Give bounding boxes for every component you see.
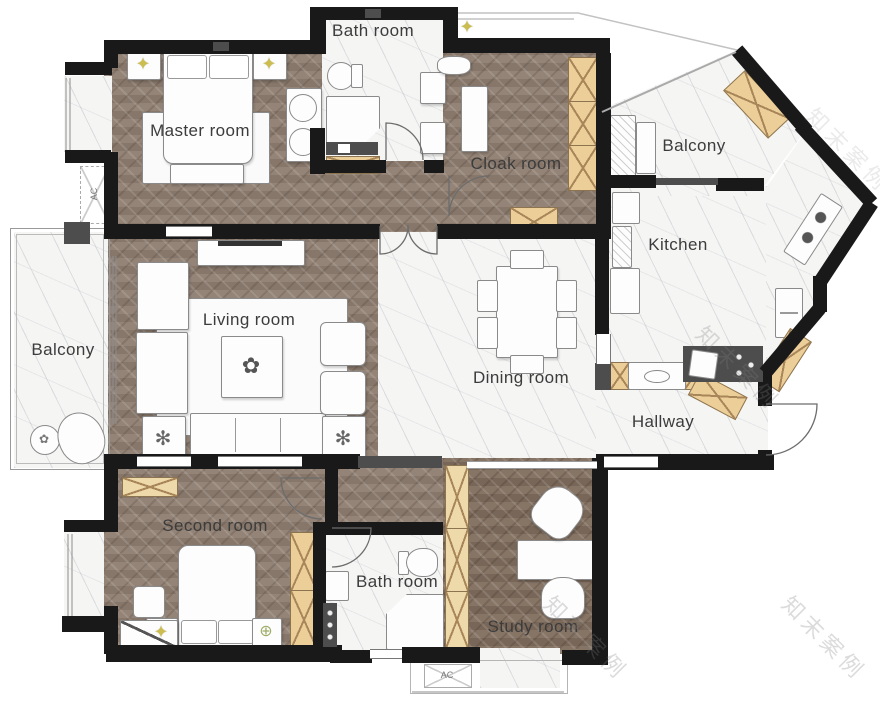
wall-bath-left-up (310, 7, 326, 54)
armchair-2 (320, 371, 366, 415)
wall-kitchen-left-stub (595, 363, 611, 390)
wall-balcony-bottom-l (596, 175, 656, 188)
second-shelf-top (122, 477, 178, 497)
wall-kitchen-left (595, 239, 609, 335)
pillow (209, 55, 249, 79)
wall-entry-stub-bottom (758, 450, 772, 466)
entrance-door-arc (766, 404, 817, 455)
second-bed (178, 545, 256, 647)
master-bench (170, 164, 244, 184)
room-label-kitchen: Kitchen (648, 235, 708, 255)
balcony-washer (610, 115, 636, 177)
pillow (181, 620, 217, 644)
wall-dining-top (437, 224, 609, 239)
tv (218, 241, 282, 246)
wall-master-left-low (104, 152, 118, 228)
wall-tick-master (213, 42, 229, 51)
room-label-dining: Dining room (473, 368, 569, 388)
room-label-cloak: Cloak room (471, 154, 562, 174)
study-shelf-1 (445, 465, 469, 529)
ceiling-light-icon: ✦ (460, 19, 474, 36)
wall-bath-bottom-r (424, 160, 444, 173)
wall-bay-cap-top (64, 520, 108, 532)
dining-chair-top (510, 250, 544, 269)
master-bed (163, 50, 253, 164)
study-desk (517, 540, 595, 580)
fan-icon: ✻ (155, 429, 172, 449)
corner-block-left (64, 222, 90, 244)
crosshair-icon: ⊕ (259, 624, 272, 640)
living-cabinet (137, 262, 189, 330)
pillow (167, 55, 207, 79)
dining-chair-r1 (556, 280, 577, 312)
watermark: 知末案例 (775, 588, 874, 687)
wall-corridor-top (358, 456, 442, 468)
bath-top-counter (326, 142, 378, 155)
second-window-bay (64, 532, 104, 618)
wall-corridor-left (325, 462, 338, 524)
wall-second-bottom (106, 645, 342, 662)
room-label-bath-top: Bath room (332, 21, 414, 41)
wall-tick-bath (365, 9, 381, 18)
ceiling-light-icon: ✦ (154, 624, 168, 641)
room-label-balcony-left: Balcony (31, 340, 94, 360)
armchair-1 (320, 322, 366, 366)
balcony-shelf (636, 122, 656, 174)
cloak-stool (437, 56, 471, 75)
wall-living-top (104, 224, 380, 239)
room-label-master: Master room (150, 121, 250, 141)
room-label-second: Second room (162, 516, 268, 536)
living-bottom-niche-1 (137, 456, 191, 467)
wall-balcony-bottom-r (716, 178, 764, 191)
room-label-bath-bottom: Bath room (356, 572, 438, 592)
kitchen-fridge (612, 192, 640, 224)
cloak-wardrobe-1 (568, 57, 598, 103)
ceiling-light-icon: ✦ (136, 56, 150, 73)
room-label-living: Living room (203, 310, 295, 330)
cloak-island (461, 86, 488, 152)
wall-master-left-conn (104, 40, 118, 68)
dining-table (496, 266, 558, 358)
wall-bay-cap-bottom (62, 616, 108, 632)
wall-kitchen-notch (813, 276, 827, 312)
study-shelf-3 (445, 591, 469, 649)
room-label-balcony-right: Balcony (662, 136, 725, 156)
wall-bath2-bottom-l (330, 650, 372, 663)
basin-2 (420, 122, 446, 154)
wall-bath-bottom-l (322, 160, 386, 173)
study-shelf-2 (445, 528, 469, 592)
kitchen-cabinet-1 (612, 226, 632, 268)
study-top-partition (467, 461, 597, 469)
pillow (218, 620, 254, 644)
toilet-tank-top (351, 64, 363, 88)
ceiling-light-icon: ✦ (262, 56, 276, 73)
balcony-kitchen-slider (656, 178, 718, 185)
wall-bath-top (310, 7, 458, 20)
vanity-chair-1 (289, 94, 317, 122)
dining-chair-r2 (556, 317, 577, 349)
second-desk (120, 620, 178, 648)
washer-column (323, 603, 337, 647)
room-label-hallway: Hallway (632, 412, 694, 432)
ac-label-left: AC (89, 188, 99, 201)
plant-icon: ✿ (39, 433, 49, 445)
wall-cloak-right (596, 53, 611, 239)
wall-cloak-top (443, 38, 610, 53)
floor-plan: AC AC ✦ ✦ ✦ ✦ ⊕ ✻ ✻ ✿ ✿ Bath room Master… (0, 0, 880, 709)
living-bottom-niche-2 (218, 456, 302, 467)
plant-icon: ✿ (242, 355, 260, 377)
ac-label-bottom: AC (441, 670, 454, 680)
basin-1 (420, 72, 446, 104)
second-chair (133, 586, 165, 618)
fan-icon: ✻ (335, 429, 352, 449)
hallway-window (604, 456, 658, 468)
kitchen-cabinet-2 (610, 268, 640, 314)
master-window-bay (64, 76, 112, 152)
wall-bath2-bottom-r (402, 647, 480, 663)
master-pocket-door (166, 226, 212, 237)
kitchen-slider-door (596, 334, 611, 364)
console-bowl (644, 370, 670, 383)
bath-top-sink (338, 144, 350, 153)
bath2-window (370, 649, 402, 659)
bath2-sink (325, 571, 349, 601)
cloak-wardrobe-2 (568, 101, 598, 147)
hallway-cabinet-l (610, 362, 630, 390)
loveseat (136, 332, 188, 414)
dining-chair-l1 (477, 280, 498, 312)
cloak-wardrobe-3 (568, 145, 598, 191)
dining-chair-l2 (477, 317, 498, 349)
